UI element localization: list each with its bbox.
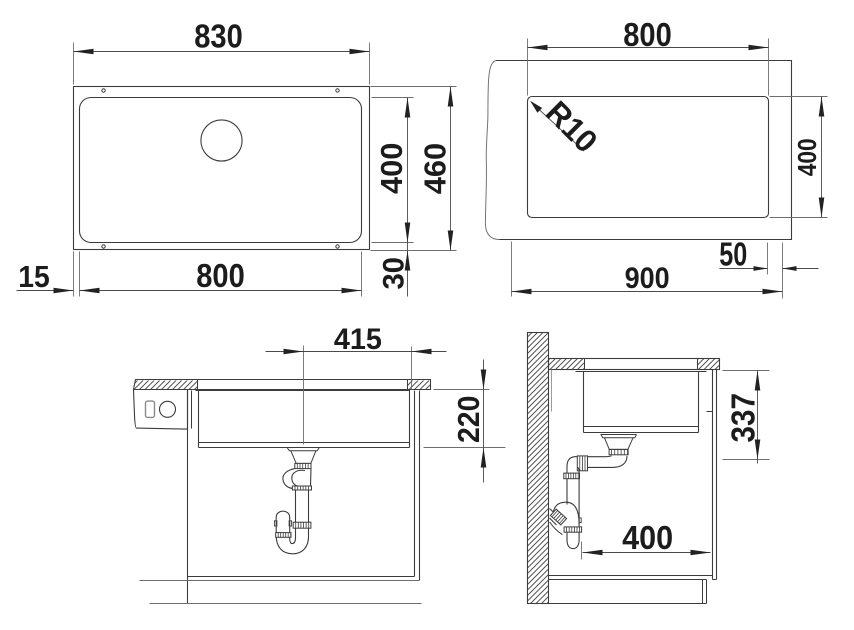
svg-text:400: 400 — [622, 520, 673, 557]
svg-text:220: 220 — [451, 396, 486, 444]
svg-text:800: 800 — [623, 17, 672, 54]
svg-text:415: 415 — [334, 323, 382, 356]
svg-text:900: 900 — [625, 262, 670, 295]
svg-text:15: 15 — [18, 259, 50, 294]
svg-text:460: 460 — [417, 143, 452, 194]
svg-text:400: 400 — [792, 138, 822, 176]
svg-text:50: 50 — [719, 237, 747, 274]
svg-text:400: 400 — [374, 143, 409, 194]
svg-text:337: 337 — [726, 393, 763, 443]
svg-text:30: 30 — [378, 257, 411, 290]
svg-text:830: 830 — [194, 19, 243, 56]
svg-text:800: 800 — [196, 258, 245, 295]
